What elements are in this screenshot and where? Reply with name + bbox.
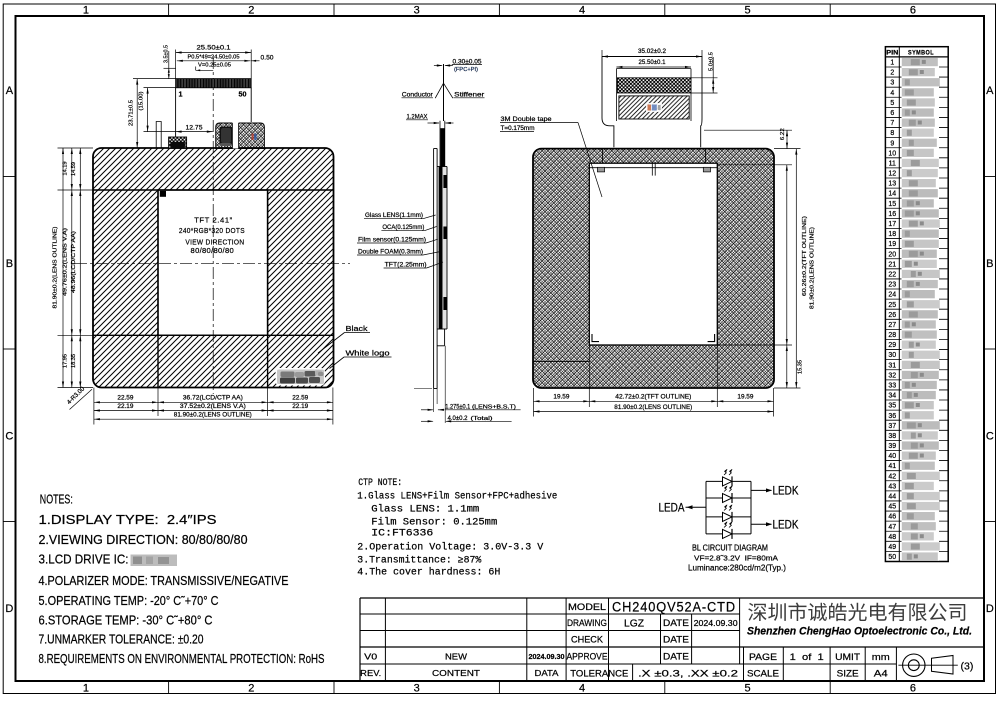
svg-text:17.95: 17.95: [63, 354, 69, 368]
svg-text:31: 31: [888, 362, 896, 369]
svg-text:2.VIEWING DIRECTION: 80/80/80/: 2.VIEWING DIRECTION: 80/80/80/80: [39, 532, 248, 547]
svg-text:15: 15: [888, 201, 896, 208]
svg-text:D: D: [986, 603, 994, 615]
svg-text:14: 14: [888, 191, 896, 198]
svg-text:0.50: 0.50: [261, 54, 274, 61]
svg-text:42.72±0.2(TFT OUTLINE): 42.72±0.2(TFT OUTLINE): [615, 393, 691, 400]
svg-text:50: 50: [239, 90, 247, 99]
svg-text:43: 43: [888, 483, 896, 490]
svg-text:26: 26: [888, 312, 896, 319]
svg-text:V0: V0: [364, 652, 377, 662]
svg-text:35.02±0.2: 35.02±0.2: [638, 48, 666, 55]
svg-text:24: 24: [888, 292, 896, 299]
svg-text:NOTES:: NOTES:: [40, 492, 73, 507]
svg-text:(15.00): (15.00): [139, 91, 145, 110]
svg-text:1: 1: [83, 5, 89, 17]
svg-text:80/80/80/80: 80/80/80/80: [191, 246, 235, 255]
svg-text:33: 33: [888, 382, 896, 389]
svg-text:47: 47: [888, 524, 896, 531]
svg-text:40: 40: [888, 453, 896, 460]
svg-text:CH240QV52A-CTD: CH240QV52A-CTD: [612, 600, 736, 616]
svg-text:DRAWING: DRAWING: [567, 618, 607, 628]
svg-text:22.19: 22.19: [117, 403, 133, 410]
svg-text:3: 3: [414, 5, 420, 17]
svg-text:35: 35: [888, 403, 896, 410]
svg-text:20: 20: [888, 251, 896, 258]
svg-text:3.LCD DRIVE IC:: 3.LCD DRIVE IC:: [39, 551, 129, 566]
svg-text:1: 1: [179, 90, 183, 99]
svg-text:.X ±0.3, .XX ±0.2: .X ±0.3, .XX ±0.2: [638, 669, 738, 680]
svg-text:4: 4: [579, 5, 585, 17]
svg-text:APPROVE: APPROVE: [567, 652, 608, 662]
svg-text:8.REQUIREMENTS ON ENVIRONMENTA: 8.REQUIREMENTS ON ENVIRONMENTAL PROTECTI…: [39, 651, 325, 666]
svg-text:48: 48: [888, 534, 896, 541]
svg-text:23.71±0.5: 23.71±0.5: [128, 100, 134, 126]
svg-text:6: 6: [910, 683, 916, 695]
svg-text:1: 1: [890, 60, 894, 67]
svg-text:42: 42: [888, 473, 896, 480]
svg-text:21: 21: [888, 261, 896, 268]
svg-text:(FPC+PI): (FPC+PI): [454, 67, 478, 73]
svg-text:2: 2: [248, 683, 254, 695]
svg-text:44: 44: [888, 494, 896, 501]
svg-text:81.90±0.2(LENS OUTLINE): 81.90±0.2(LENS OUTLINE): [614, 404, 692, 411]
svg-text:PAGE: PAGE: [749, 652, 777, 662]
svg-text:39: 39: [888, 443, 896, 450]
svg-text:22: 22: [888, 271, 896, 278]
svg-text:3.Transmittance: ≥87%: 3.Transmittance: ≥87%: [357, 554, 481, 566]
svg-text:C: C: [986, 431, 994, 443]
svg-text:6: 6: [890, 110, 894, 117]
svg-text:5.OPERATING TEMP: -20° C˜+70°: 5.OPERATING TEMP: -20° C˜+70° C: [39, 593, 219, 608]
svg-text:14.59: 14.59: [71, 162, 77, 176]
svg-text:13: 13: [888, 181, 896, 188]
svg-text:81.90±0.2(LENS OUTLINE): 81.90±0.2(LENS OUTLINE): [53, 226, 59, 308]
svg-text:SIZE: SIZE: [837, 669, 859, 679]
svg-text:19.59: 19.59: [737, 393, 753, 400]
svg-text:Shenzhen ChengHao Optoelectron: Shenzhen ChengHao Optoelectronic Co., Lt…: [747, 626, 972, 638]
svg-text:PIN: PIN: [886, 50, 899, 57]
svg-text:TFT(2.25mm): TFT(2.25mm): [385, 262, 427, 269]
svg-text:4.The cover hardness: 6H: 4.The cover hardness: 6H: [357, 567, 500, 579]
svg-text:15.35: 15.35: [798, 360, 804, 374]
svg-text:17: 17: [888, 221, 896, 228]
svg-text:19: 19: [888, 241, 896, 248]
svg-text:Black: Black: [346, 324, 368, 333]
svg-text:36: 36: [888, 413, 896, 420]
svg-text:MODEL: MODEL: [568, 602, 606, 612]
svg-text:3.5±0.5: 3.5±0.5: [163, 45, 169, 63]
svg-text:34: 34: [888, 393, 896, 400]
svg-text:LEDK: LEDK: [773, 520, 799, 532]
svg-text:4: 4: [890, 90, 894, 97]
svg-text:Film sensor(0.125mm): Film sensor(0.125mm): [358, 237, 426, 244]
svg-text:CTP NOTE:: CTP NOTE:: [358, 478, 402, 489]
svg-text:Glass LENS(1.1mm): Glass LENS(1.1mm): [365, 212, 423, 219]
svg-text:49: 49: [888, 544, 896, 551]
svg-text:8: 8: [890, 130, 894, 137]
svg-text:48.96(LCD/CTP AA): 48.96(LCD/CTP AA): [71, 231, 77, 293]
svg-text:3: 3: [414, 683, 420, 695]
svg-text:CONTENT: CONTENT: [432, 668, 481, 678]
svg-text:LEDK: LEDK: [773, 486, 799, 498]
svg-text:7: 7: [890, 120, 894, 127]
svg-text:30: 30: [888, 352, 896, 359]
svg-text:23: 23: [888, 282, 896, 289]
svg-text:1 of 1: 1 of 1: [790, 652, 824, 662]
svg-text:DATE: DATE: [663, 635, 689, 645]
svg-text:29: 29: [888, 342, 896, 349]
svg-text:11: 11: [889, 160, 896, 167]
svg-text:Film Sensor: 0.125mm: Film Sensor: 0.125mm: [371, 516, 497, 528]
svg-text:5.0±0.5: 5.0±0.5: [708, 52, 714, 71]
svg-text:UMIT: UMIT: [835, 652, 860, 662]
svg-text:C: C: [5, 431, 13, 443]
svg-text:mm: mm: [872, 652, 890, 662]
svg-text:7.UNMARKER TOLERANCE: ±0.20: 7.UNMARKER TOLERANCE: ±0.20: [39, 632, 204, 647]
svg-text:(LENS+B.S.T): (LENS+B.S.T): [472, 404, 516, 410]
svg-text:60.26±0.2(TFT OUTLINE): 60.26±0.2(TFT OUTLINE): [802, 216, 808, 296]
svg-text:A4: A4: [874, 669, 888, 679]
svg-text:White logo: White logo: [346, 349, 390, 358]
svg-text:46: 46: [888, 514, 896, 521]
svg-text:DATE: DATE: [663, 652, 689, 662]
svg-text:1.275±0.1: 1.275±0.1: [445, 403, 471, 410]
svg-text:2.Operation Voltage: 3.0V-3.3: 2.Operation Voltage: 3.0V-3.3 V: [357, 542, 543, 554]
svg-text:SCALE: SCALE: [747, 669, 779, 679]
svg-text:3: 3: [890, 80, 894, 87]
svg-text:25: 25: [888, 302, 896, 309]
svg-text:2: 2: [248, 5, 254, 17]
svg-text:45: 45: [888, 504, 896, 511]
svg-text:T=0.175mm: T=0.175mm: [501, 125, 535, 132]
svg-text:A: A: [986, 85, 994, 97]
svg-text:18.35: 18.35: [71, 354, 77, 368]
svg-text:25.50±0.1: 25.50±0.1: [639, 59, 666, 66]
svg-text:Double FOAM(0.3mm): Double FOAM(0.3mm): [358, 249, 423, 256]
svg-text:36.72(LCD/CTP AA): 36.72(LCD/CTP AA): [183, 394, 243, 401]
svg-text:10: 10: [888, 150, 896, 157]
svg-text:Conductor: Conductor: [402, 91, 434, 98]
svg-text:37.52±0.2(LENS V.A): 37.52±0.2(LENS V.A): [180, 403, 246, 410]
svg-text:NEW: NEW: [445, 652, 468, 662]
svg-text:5: 5: [744, 5, 750, 17]
svg-text:V=0.25±0.05: V=0.25±0.05: [198, 62, 231, 68]
svg-text:19.59: 19.59: [553, 393, 569, 400]
svg-text:18: 18: [888, 231, 896, 238]
svg-text:P0.5*49=24.50±0.05: P0.5*49=24.50±0.05: [188, 54, 240, 60]
svg-text:REV.: REV.: [360, 668, 381, 678]
svg-text:IC:FT6336: IC:FT6336: [371, 529, 433, 540]
svg-text:5: 5: [890, 100, 894, 107]
svg-text:Luminance:280cd/m2(Typ.): Luminance:280cd/m2(Typ.): [688, 564, 786, 573]
svg-text:B: B: [6, 258, 13, 270]
svg-text:81.90±0.2(LENS OUTLINE): 81.90±0.2(LENS OUTLINE): [174, 412, 252, 419]
svg-text:12: 12: [888, 171, 896, 178]
svg-text:LEDA: LEDA: [659, 503, 685, 515]
svg-text:DATE: DATE: [663, 618, 689, 628]
svg-text:LGZ: LGZ: [624, 619, 644, 630]
svg-text:1: 1: [83, 683, 89, 695]
svg-text:81.90±0.2(LENS OUTLINE): 81.90±0.2(LENS OUTLINE): [809, 227, 815, 309]
svg-text:38: 38: [888, 433, 896, 440]
svg-text:Stiffener: Stiffener: [454, 91, 485, 98]
svg-text:9: 9: [890, 140, 894, 147]
svg-text:28: 28: [888, 332, 896, 339]
svg-text:SYMBOL: SYMBOL: [908, 49, 934, 56]
svg-text:14.19: 14.19: [63, 162, 69, 176]
svg-text:CHECK: CHECK: [571, 635, 604, 645]
svg-text:1.DISPLAY TYPE: 2.4″IPS: 1.DISPLAY TYPE: 2.4″IPS: [39, 512, 217, 527]
svg-text:(Total): (Total): [471, 416, 493, 422]
svg-text:Glass LENS: 1.1mm: Glass LENS: 1.1mm: [371, 503, 479, 515]
svg-text:D: D: [5, 603, 13, 615]
svg-text:3M Double tape: 3M Double tape: [501, 116, 553, 123]
svg-text:(3): (3): [961, 661, 974, 673]
svg-text:41: 41: [888, 463, 896, 470]
svg-text:6: 6: [910, 5, 916, 17]
svg-text:6.STORAGE TEMP: -30° C˜+80° C: 6.STORAGE TEMP: -30° C˜+80° C: [39, 612, 213, 627]
svg-text:5: 5: [744, 683, 750, 695]
svg-text:A: A: [6, 85, 14, 97]
svg-text:B: B: [986, 258, 993, 270]
svg-text:6.22: 6.22: [780, 128, 786, 140]
svg-text:22.59: 22.59: [292, 394, 308, 401]
svg-text:37: 37: [888, 423, 896, 430]
svg-text:12.75: 12.75: [186, 124, 203, 131]
svg-text:16: 16: [888, 211, 896, 218]
svg-text:BL CIRCUIT DIAGRAM: BL CIRCUIT DIAGRAM: [692, 544, 768, 553]
svg-text:DATA: DATA: [535, 668, 559, 678]
svg-text:32: 32: [888, 372, 896, 379]
svg-text:22.59: 22.59: [117, 394, 133, 401]
svg-text:22.19: 22.19: [292, 403, 308, 410]
svg-text:VF=2.8˜3.2V IF=80mA: VF=2.8˜3.2V IF=80mA: [694, 554, 778, 563]
svg-text:2024.09.30: 2024.09.30: [694, 619, 739, 628]
svg-text:25.50±0.1: 25.50±0.1: [197, 45, 231, 52]
svg-text:2: 2: [890, 70, 894, 77]
svg-text:4.POLARIZER MODE: TRANSMISSIVE: 4.POLARIZER MODE: TRANSMISSIVE/NEGATIVE: [39, 573, 289, 588]
svg-text:1.Glass LENS+Film Sensor+FPC+a: 1.Glass LENS+Film Sensor+FPC+adhesive: [357, 490, 557, 502]
svg-text:OCA(0.125mm): OCA(0.125mm): [382, 224, 424, 231]
svg-text:2024.09.30: 2024.09.30: [529, 654, 565, 661]
svg-text:240*RGB*320 DOTS: 240*RGB*320 DOTS: [179, 226, 245, 235]
svg-text:27: 27: [888, 322, 896, 329]
svg-text:50: 50: [888, 554, 896, 561]
svg-text:TOLERANCE: TOLERANCE: [570, 669, 628, 679]
svg-text:1.2MAX: 1.2MAX: [407, 113, 429, 120]
svg-text:4: 4: [579, 683, 585, 695]
svg-text:49.76±0.2(LENS V.A): 49.76±0.2(LENS V.A): [63, 228, 69, 296]
